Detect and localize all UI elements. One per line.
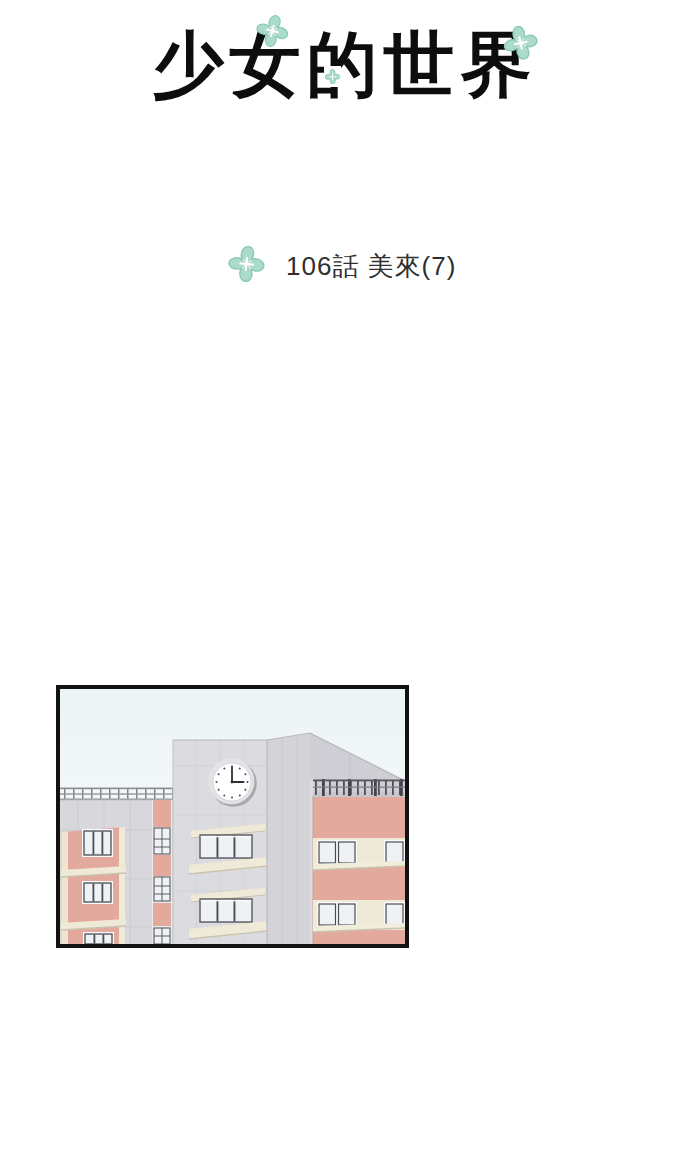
roof-railing-right xyxy=(313,779,405,797)
clover-icon xyxy=(500,22,542,64)
chapter-title: 106話 美來(7) xyxy=(286,249,456,284)
stairwell-strip xyxy=(152,800,172,944)
series-title: 少女的世界 xyxy=(0,28,690,103)
school-illustration xyxy=(60,689,405,944)
clover-dot-icon xyxy=(324,66,341,87)
clock-tower xyxy=(173,733,310,944)
roof-railing-left xyxy=(60,788,173,801)
left-building xyxy=(60,788,173,944)
clover-icon xyxy=(226,243,267,284)
webtoon-page: 少女的世界 xyxy=(0,0,690,1168)
comic-panel xyxy=(56,685,409,948)
right-building xyxy=(310,779,405,944)
